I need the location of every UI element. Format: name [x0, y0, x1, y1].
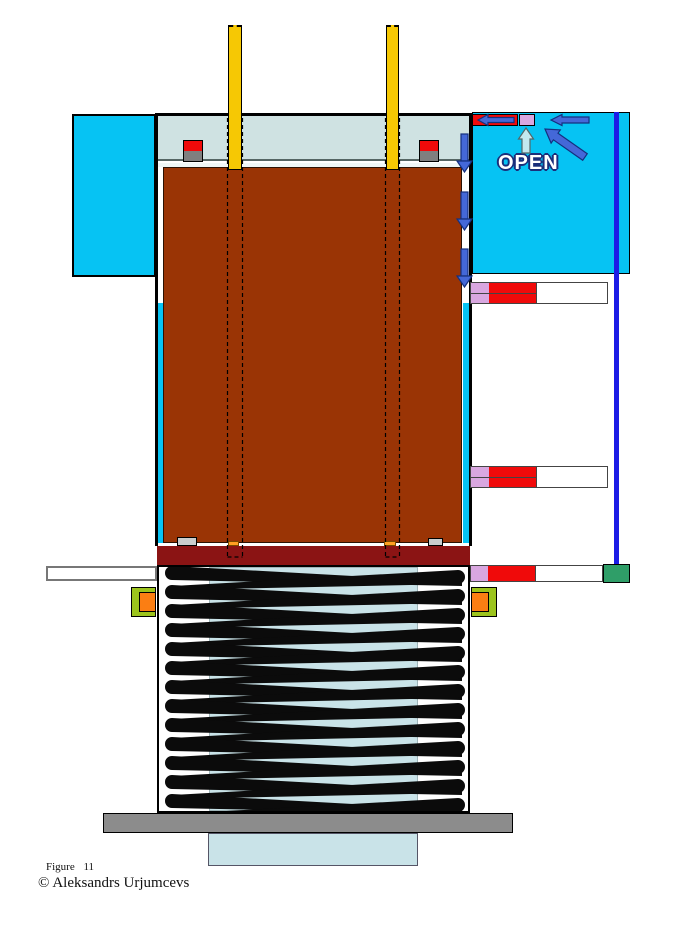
pushrod-divider: [471, 293, 536, 294]
piston-skirt-bar: [157, 546, 470, 565]
cylinder-lining-right: [463, 303, 469, 543]
piston-bottom-seal-right: [384, 541, 396, 546]
inlet-port-red-bar: [472, 114, 518, 126]
guide-orange-right: [471, 592, 489, 612]
linkage-end-block: [603, 564, 630, 583]
open-state-label: OPEN: [498, 152, 559, 175]
base-plate: [103, 813, 513, 833]
seat-gray-part: [184, 151, 202, 161]
guide-rod-left: [46, 566, 157, 581]
cylinder-lining-left: [158, 303, 163, 543]
pushrod-bar-lower: [470, 565, 603, 582]
left-intake-chamber: [72, 114, 156, 277]
figure-label: Figure 11: [46, 861, 94, 873]
guide-orange-left: [139, 592, 156, 612]
piston: [163, 167, 462, 543]
vertical-linkage-line: [614, 112, 619, 567]
base-foot: [208, 833, 418, 866]
pushrod-bar-middle: [470, 466, 608, 488]
piston-bottom-tab-right: [428, 538, 443, 546]
valve-seat-right: [419, 140, 439, 162]
inlet-valve-violet: [519, 114, 535, 126]
copyright-label: © Aleksandrs Urjumcevs: [38, 875, 189, 892]
right-intake-chamber: [472, 112, 630, 274]
pushrod-violet-cell: [471, 566, 489, 581]
valve-stem-right: [386, 25, 399, 170]
piston-bottom-seal-left: [228, 541, 239, 546]
seat-red-part: [420, 141, 438, 151]
pushrod-red-cell: [488, 566, 536, 581]
pushrod-divider: [471, 477, 536, 478]
spring-inner-shaft: [209, 567, 418, 811]
valve-stem-left: [228, 25, 242, 170]
seat-red-part: [184, 141, 202, 151]
piston-bottom-tab-left: [177, 537, 197, 546]
pushrod-bar-upper: [470, 282, 608, 304]
valve-seat-left: [183, 140, 203, 162]
seat-gray-part: [420, 151, 438, 161]
diagram-canvas: OPEN Figure 11 © Aleksandrs Urjumcevs: [0, 0, 700, 933]
